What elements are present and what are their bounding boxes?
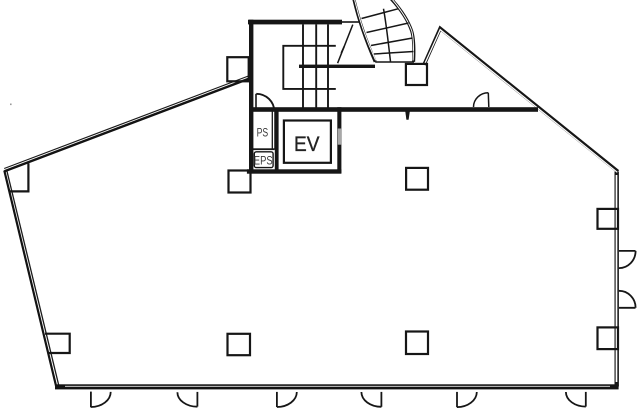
svg-text:EV: EV: [294, 132, 320, 156]
svg-text:EPS: EPS: [254, 154, 273, 168]
svg-text:PS: PS: [257, 126, 269, 140]
